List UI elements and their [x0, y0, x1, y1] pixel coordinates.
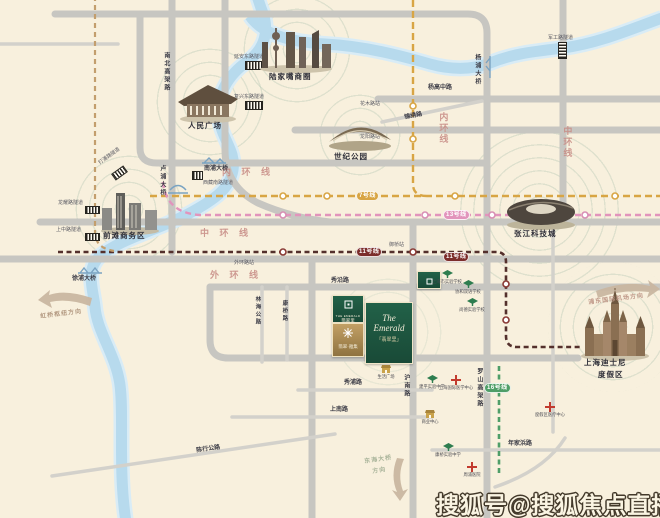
school-icon	[442, 270, 453, 279]
road-label-nianjiabang: 年家浜路	[508, 441, 532, 448]
poi-mall-2: 商业中心	[400, 410, 460, 425]
middle-ring-label-h: 中 环 线	[200, 228, 252, 238]
school-icon	[443, 443, 454, 452]
bridge-label-xupu: 徐浦大桥	[72, 276, 96, 283]
road-label-linhai: 林海公路	[254, 296, 260, 326]
bridge-label-yangpu: 杨浦大桥	[473, 54, 480, 86]
road-label-xiupu: 秀浦路	[344, 380, 362, 387]
location-map: 内 环 线 内环线 中 环 线 中环线 外 环 线 南北高架路 杨高中路 锦绣路…	[0, 0, 660, 518]
metro-line11-path	[58, 252, 582, 347]
tunnel-label-xizang: 西藏南路隧道	[203, 181, 233, 187]
school-icon	[467, 298, 478, 307]
tunnel-label-longyao: 龙耀路隧道	[58, 201, 83, 207]
line11-badge-east: 11号线	[443, 252, 469, 262]
jungong-tunnel-icon	[559, 43, 566, 58]
poi-school-5: 康桥实验中学	[418, 443, 478, 458]
road-label-yanggao: 杨高中路	[428, 85, 452, 92]
lujiazui-skyline-illustration	[256, 24, 336, 79]
project-marker-en: THE EMERALD	[418, 290, 440, 294]
line11-badge-west: 11号线	[356, 247, 382, 257]
poi-hospital-3: 周浦医院	[442, 462, 502, 478]
poi-hospital-2: 度假区医疗中心	[520, 402, 580, 418]
line13-badge: 13号线	[443, 210, 470, 220]
project-script-name: The Emerald	[366, 313, 412, 333]
middle-ring-label-v: 中环线	[562, 126, 572, 159]
project-badge-gold-cn: 翡翠·雅集	[333, 344, 363, 350]
project-sub-name: 「翡翠里」	[366, 336, 412, 343]
inner-ring-label-v: 内环线	[438, 112, 448, 145]
chenhang-road	[52, 434, 335, 476]
hospital-cross-icon	[545, 402, 555, 412]
road-label-kangqiao: 康桥路	[281, 300, 287, 323]
poi-school-2: 协和双语学校	[438, 280, 498, 295]
landmark-label-lujiazui: 陆家嘴商圈	[269, 73, 312, 82]
project-badge-green: THE EMERALD 翡翠里	[332, 295, 364, 323]
landmark-label-disney-2: 度假区	[598, 371, 624, 380]
hospital-cross-icon	[467, 462, 477, 472]
hongqiao-arrow-icon	[38, 290, 92, 308]
fuxing-tunnel-icon	[246, 102, 262, 109]
inner-ring-label-h: 内 环 线	[222, 167, 274, 177]
station-label-waihuan: 外环路站	[234, 261, 254, 267]
watermark: 搜狐号@搜狐焦点直播站	[436, 486, 660, 518]
mall-icon	[381, 365, 391, 374]
mall-icon	[425, 410, 435, 419]
landmark-label-zhangjiang: 张江科技城	[514, 230, 557, 239]
outer-ring-label-h: 外 环 线	[210, 270, 262, 280]
school-icon	[463, 280, 474, 289]
road-label-shangnan: 上南路	[330, 407, 348, 414]
line16-badge: 16号线	[484, 383, 511, 393]
poi-mall-1: 生活广场	[356, 365, 416, 380]
tunnel-label-jungong: 军工路隧道	[548, 36, 573, 42]
landmark-label-qiantan: 前滩商务区	[103, 232, 146, 241]
station-label-yuqiao: 御桥站	[389, 243, 404, 249]
emerald-logo-icon	[344, 300, 353, 309]
xizang-tunnel-icon	[193, 172, 202, 179]
line7-badge: 7号线	[356, 191, 379, 201]
poi-hospital-1: 上海国际医学中心	[426, 375, 486, 391]
landmark-label-shiji: 世纪公园	[334, 153, 368, 162]
station-label-huamu: 花木路站	[360, 102, 380, 108]
flower-logo-icon	[342, 327, 354, 339]
project-main-box: The Emerald 「翡翠里」	[365, 302, 413, 364]
hospital-cross-icon	[451, 375, 461, 385]
road-label-xiuyan: 秀沿路	[331, 278, 349, 285]
poi-school-3: 尚德实验学校	[442, 298, 502, 313]
project-badge-gold: 翡翠·雅集	[332, 323, 364, 357]
bridge-label-nanpu: 南浦大桥	[204, 166, 228, 173]
tunnel-label-shangzhong: 上中路隧道	[56, 228, 81, 234]
donghai-arrow-icon	[392, 458, 408, 501]
jinxiu-road	[382, 101, 482, 122]
landmark-label-disney-1: 上海迪士尼	[584, 359, 627, 368]
landmark-label-renmin: 人民广场	[188, 122, 222, 131]
road-label-nanbei: 南北高架路	[162, 52, 169, 92]
